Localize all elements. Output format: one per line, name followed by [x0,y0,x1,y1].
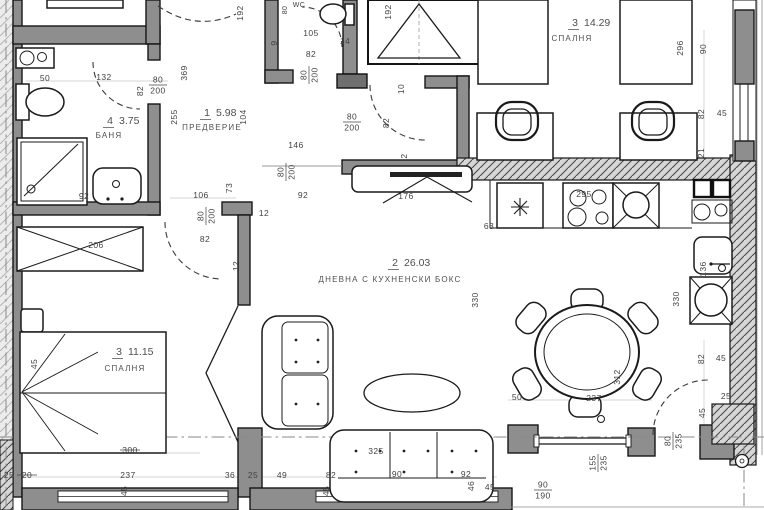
svg-text:82: 82 [135,86,145,96]
dimension-label: 106 [193,190,208,200]
pedestal-sink [93,168,141,204]
wall-divider-lower [238,428,262,497]
svg-text:92: 92 [79,191,89,201]
dimension-label: 10 [396,84,406,94]
cut-furniture-top [47,0,123,8]
drain-pipe-icon [736,455,749,468]
svg-text:10: 10 [396,84,406,94]
svg-text:200: 200 [150,86,165,96]
svg-text:200: 200 [207,208,217,223]
dimension-label: 82 [326,470,336,480]
floor-plan-drawing: 501328280200369192255104WC80105828020014… [0,0,764,510]
svg-text:50: 50 [512,392,522,402]
dimension-label: 36 [225,470,235,480]
svg-text:235: 235 [599,455,609,470]
svg-text:90: 90 [538,480,548,490]
bedroom-left-furniture [17,227,166,453]
svg-text:ДНЕВНА С КУХНЕНСКИ БОКС: ДНЕВНА С КУХНЕНСКИ БОКС [318,275,461,284]
door-leaf-bedroom [206,306,238,442]
svg-text:200: 200 [344,123,359,133]
svg-text:296: 296 [675,40,685,55]
svg-text:45: 45 [485,482,495,492]
vanity-sink [16,48,54,68]
svg-text:237: 237 [586,393,601,403]
dimension-label: 146 [288,140,303,150]
dimension-label: 80235 [663,432,684,450]
svg-text:14: 14 [340,36,350,46]
svg-text:80: 80 [153,75,163,85]
svg-text:200: 200 [310,67,320,82]
svg-text:73: 73 [224,183,234,193]
svg-text:3.75: 3.75 [119,115,140,127]
dimension-label: 192 [383,4,393,19]
dimension-label: 45 [119,486,129,496]
room-label: 15.98ПРЕДВЕРИЕ [182,107,242,132]
dimension-label: 90190 [534,480,552,501]
svg-text:255: 255 [169,109,179,124]
svg-text:106: 106 [193,190,208,200]
svg-text:312: 312 [612,369,622,384]
svg-text:237: 237 [120,470,135,480]
desk [477,113,553,160]
svg-text:46: 46 [466,481,476,491]
dimension-label: 90 [392,469,402,479]
svg-text:45: 45 [321,486,331,496]
wall-south-block [508,425,538,453]
dimension-label: 45 [29,359,39,369]
svg-text:176: 176 [398,191,413,201]
dimension-label: 237 [586,393,601,403]
toilet-bowl [26,88,64,116]
wall-right-pier-mid [735,141,754,161]
wall-bath-right [148,104,160,215]
svg-text:90: 90 [698,44,708,54]
svg-text:45: 45 [697,408,707,418]
svg-text:14.29: 14.29 [584,17,610,29]
room-label: 314.29СПАЛНЯ [551,17,610,43]
svg-text:92: 92 [298,190,308,200]
svg-text:82: 82 [326,470,336,480]
wc-toilet-bowl [320,4,346,24]
side-sink-bowl-icon [694,204,710,220]
dimension-label: 136 [698,261,708,276]
svg-text:80: 80 [196,211,206,221]
dimension-label: 92 [79,191,89,201]
armchair [262,316,333,429]
svg-text:82: 82 [200,234,210,244]
svg-text:9: 9 [269,40,279,45]
floor-plan-page: 501328280200369192255104WC80105828020014… [0,0,764,510]
wall-wc-stub [265,70,293,83]
svg-text:3: 3 [572,17,578,29]
svg-text:82: 82 [696,354,706,364]
dimension-label: 12 [259,208,269,218]
faucet-dot [106,197,109,200]
dimension-label: 73 [224,183,234,193]
svg-text:82: 82 [696,109,706,119]
wall-bedroom-kitchen-hatched [457,158,736,180]
svg-text:132: 132 [96,72,111,82]
dimension-label: 92 [298,190,308,200]
dimension-label: 80 [282,6,289,15]
side-sink-faucet-icon [715,204,727,216]
dimension-label: 330 [470,292,480,307]
column-hatched [712,404,754,444]
svg-text:45: 45 [29,359,39,369]
svg-text:СПАЛНЯ: СПАЛНЯ [551,34,592,43]
dimension-label: 80200 [299,66,320,84]
dining-table [535,305,639,399]
svg-text:80: 80 [299,70,309,80]
dimension-label: 90 [698,44,708,54]
dimension-label: 46 [466,481,476,491]
wall-hall-right [457,76,469,166]
dimension-label: WC [293,2,305,9]
svg-text:206: 206 [88,240,103,250]
svg-text:369: 369 [179,65,189,80]
door-arc-corridor [158,6,236,21]
dimension-label: 80200 [149,75,167,96]
svg-text:190: 190 [535,491,550,501]
svg-text:36: 36 [225,470,235,480]
dimension-label: 45 [716,353,726,363]
dimension-label: 176 [398,191,413,201]
dimension-label: 9 [269,40,279,45]
svg-text:1: 1 [204,107,210,119]
svg-text:25: 25 [721,391,731,401]
svg-text:45: 45 [717,108,727,118]
shower-tray [17,138,87,205]
oven-stack [713,180,730,197]
wc-fixtures [320,4,354,25]
svg-text:БАНЯ: БАНЯ [96,131,123,140]
dimension-label: 25 [248,470,258,480]
svg-text:21: 21 [696,148,706,158]
dimension-label: 82 [200,234,210,244]
wall-bedroom-door-stub [222,202,252,215]
dimension-label: 45 [697,408,707,418]
kitchen [490,180,732,324]
dimension-label: 237 [120,470,135,480]
dimension-label: 82 [696,109,706,119]
svg-text:WC: WC [293,2,305,9]
dimension-label: 2 [399,153,409,158]
svg-text:200: 200 [287,164,297,179]
dimension-label: 12 [231,261,241,271]
svg-text:80: 80 [347,112,357,122]
faucet-dot [120,197,123,200]
closet-body [352,166,472,192]
svg-text:63: 63 [484,221,494,231]
pillow [21,309,43,332]
dimension-label: 132 [96,72,111,82]
wall-bath-top [13,26,160,44]
svg-text:45: 45 [716,353,726,363]
svg-text:26.03: 26.03 [404,257,430,269]
svg-text:80: 80 [282,6,289,15]
svg-text:ПРЕДВЕРИЕ: ПРЕДВЕРИЕ [182,123,242,132]
svg-text:82: 82 [306,49,316,59]
dimension-label: 25 [721,391,731,401]
dimension-label: 82 [306,49,316,59]
wall-bath-right-stub [148,44,160,60]
svg-text:СПАЛНЯ: СПАЛНЯ [104,364,145,373]
svg-text:5.98: 5.98 [216,107,237,119]
dimension-label: 49 [277,470,287,480]
svg-text:80: 80 [663,436,673,446]
chair-detail-icon [598,416,605,423]
dimension-label: 50 [40,73,50,83]
svg-text:330: 330 [470,292,480,307]
dimension-label: 14 [340,36,350,46]
dimension-label: 80200 [343,112,361,133]
svg-text:192: 192 [383,4,393,19]
svg-text:155: 155 [588,455,598,470]
dimension-label: 300 [120,445,140,455]
svg-text:4: 4 [107,115,113,127]
svg-text:192: 192 [235,5,245,20]
svg-text:12: 12 [231,261,241,271]
svg-text:49: 49 [277,470,287,480]
svg-text:90: 90 [392,469,402,479]
dimension-label: 296 [675,40,685,55]
wall-south-pier [628,428,655,456]
dimension-label: 206 [88,240,103,250]
dimension-label: 45 [321,486,331,496]
svg-text:295: 295 [576,189,591,199]
svg-text:45: 45 [119,486,129,496]
svg-text:325: 325 [368,446,383,456]
wall-divider-upper [238,215,250,305]
svg-text:2: 2 [399,153,409,158]
room-label: 226.03ДНЕВНА С КУХНЕНСКИ БОКС [318,257,461,284]
sink-bowl-icon [623,192,649,218]
room-label: 43.75БАНЯ [96,115,140,140]
dimension-label: 82 [381,118,391,128]
dimension-label: 255 [169,109,179,124]
door-arc-bedroom-left [165,222,222,279]
svg-text:235: 235 [674,433,684,448]
dimension-label: 25 [4,470,14,480]
svg-text:25: 25 [4,470,14,480]
dimension-label: 155235 [588,454,609,472]
dimension-label: 82 [135,86,145,96]
dimension-label: 80200 [196,207,217,225]
dimension-label: 105 [303,28,318,38]
side-counter [692,200,732,223]
svg-text:25: 25 [248,470,258,480]
svg-text:92: 92 [461,469,471,479]
washer-drum-icon [695,284,727,316]
svg-text:330: 330 [671,291,681,306]
closet-rail [390,172,462,177]
wall-right-pier-top [735,10,754,84]
dimension-label: 92 [461,469,471,479]
dimension-label: 21 [696,148,706,158]
dimension-label: 45 [717,108,727,118]
dimension-label: 63 [484,221,494,231]
svg-text:50: 50 [40,73,50,83]
dimension-label: 45 [485,482,495,492]
svg-text:2: 2 [392,257,398,269]
wall-bath-jog [146,0,160,44]
door-arc-bathroom [93,62,140,109]
oval-rug [364,374,460,412]
dimension-label: 50 [512,392,522,402]
oven-stack [694,180,711,197]
bed-single [478,0,548,84]
svg-text:80: 80 [276,167,286,177]
svg-text:3: 3 [116,346,122,358]
dimension-label: 369 [179,65,189,80]
dimension-label: 192 [235,5,245,20]
svg-text:12: 12 [259,208,269,218]
svg-text:82: 82 [381,118,391,128]
dimension-label: 312 [612,369,622,384]
dimension-label: 330 [671,291,681,306]
dimension-label: 295 [576,189,591,199]
svg-text:136: 136 [698,261,708,276]
svg-text:146: 146 [288,140,303,150]
dimension-label: 325 [368,446,383,456]
wall-shaft-foot [337,74,367,88]
svg-text:105: 105 [303,28,318,38]
dimension-label: 82 [696,354,706,364]
svg-text:11.15: 11.15 [128,346,154,358]
